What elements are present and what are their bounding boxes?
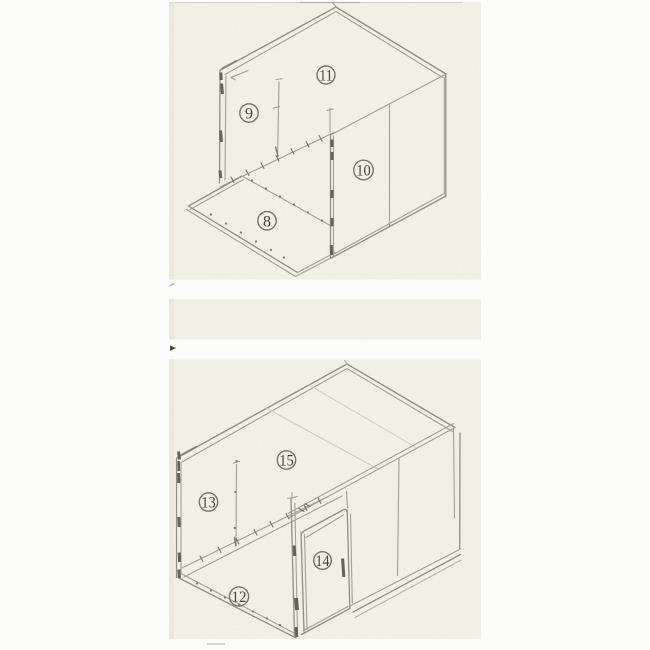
svg-text:14: 14 [316, 553, 330, 570]
svg-text:11: 11 [319, 68, 333, 85]
svg-text:15: 15 [279, 453, 294, 470]
svg-text:12: 12 [232, 589, 247, 606]
svg-text:9: 9 [245, 106, 253, 123]
svg-text:10: 10 [356, 163, 371, 180]
svg-text:13: 13 [201, 495, 216, 512]
svg-text:8: 8 [263, 213, 271, 230]
